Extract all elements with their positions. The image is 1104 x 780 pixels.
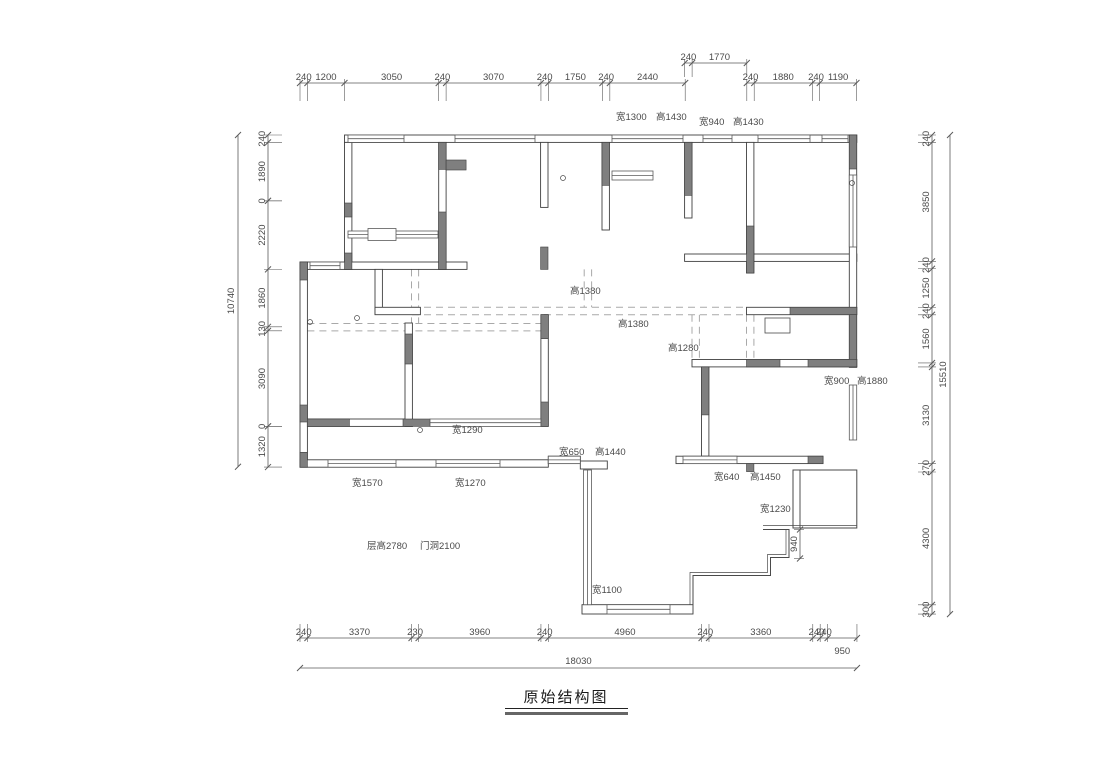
dim-label: 3130 [921,405,932,426]
window [607,605,670,614]
dim-label: 240 [743,72,759,83]
concrete-columns [345,253,352,269]
dim-chain-step-940: 940 [789,527,804,562]
annotation-text: 宽650 [559,446,584,458]
dim-label: 240 [434,72,450,83]
dim-chain-top-right: 24018802401190 [743,72,860,101]
pass-through-window [368,229,396,241]
dim-overall-overall-right: 15510 [938,132,953,617]
terrace-step-outline [693,530,789,605]
title-underline [505,712,628,715]
dim-label: 3070 [483,72,504,83]
dim-label: 950 [834,646,850,657]
window [455,135,535,142]
dim-label: 940 [789,536,800,552]
annotation-text: 高1280 [668,342,699,354]
concrete-columns [307,419,349,426]
window [822,135,848,142]
dim-overall-overall-left: 10740 [226,132,241,470]
concrete-columns [541,315,548,339]
dim-label: 240 [921,303,932,319]
dim-label: 1770 [709,52,730,63]
dim-label: 2220 [257,225,268,246]
concrete-columns [747,226,754,273]
dim-label: 1190 [828,72,848,83]
window [612,135,683,142]
dim-label: 3370 [349,627,370,638]
concrete-columns [300,262,307,280]
concrete-columns [808,456,823,463]
dim-label: 3050 [381,72,402,83]
dim-label: 230 [407,627,423,638]
dim-label: 3090 [257,368,268,389]
concrete-columns [345,203,352,217]
annotation-text: 高1880 [857,375,888,387]
annotation-text: 宽940 [699,116,724,128]
dim-label: 3960 [469,627,490,638]
symbol-circle [355,316,360,321]
concrete-columns [300,452,307,467]
dim-label: 18030 [565,656,591,667]
annotation-text: 宽640 [714,471,739,483]
dim-label: 3360 [750,627,771,638]
symbol-circle [418,428,423,433]
dim-label: 240 [537,627,553,638]
walls [793,470,800,528]
title-underline [505,708,628,709]
dim-label: 240 [537,72,553,83]
annotation-text: 层高2780 [367,540,407,552]
walls [375,307,420,314]
annotation-layer: 宽1300高1430宽940高1430高1380高1380高1280宽900高1… [352,111,888,596]
concrete-columns [403,419,430,426]
dim-label: 240 [697,627,713,638]
dim-label: 1750 [565,72,586,83]
window [584,470,592,605]
concrete-columns [405,334,412,364]
concrete-columns [790,307,857,314]
dim-chain-left: 2401890022201860130309001320 [257,131,282,470]
dim-label: 240 [808,72,824,83]
annotation-text: 门洞2100 [420,540,460,552]
dim-chain-top-main: 24012003050240307024017502402440 [296,72,688,101]
balcony-slider [430,419,541,426]
window [436,460,500,467]
window [758,135,810,142]
concrete-columns [439,212,446,269]
walls [685,254,754,261]
annotation-text: 宽1570 [352,477,383,489]
annotation-text: 高1380 [618,318,649,330]
annotation-text: 高1440 [595,446,626,458]
concrete-columns [747,464,754,472]
annotation-text: 高1450 [750,471,781,483]
floorplan-canvas: 2401200305024030702401750240244024017702… [0,0,1104,780]
window [849,385,856,440]
concrete-columns [849,135,856,169]
dim-label: 15510 [938,361,949,387]
concrete-columns [446,160,466,170]
dim-label: 240 [257,131,268,147]
terrace-step-inner [690,530,786,605]
dim-label: 3850 [921,191,932,212]
window [328,460,396,467]
dim-label: 1320 [257,436,268,457]
terrace-room [793,470,857,528]
concrete-columns [808,360,857,367]
annotation-text: 宽1100 [592,584,622,596]
walls [541,142,548,207]
annotation-text: 宽1300 [616,111,647,123]
dim-label: 0 [257,424,268,429]
dim-label: 240 [921,131,932,147]
annotation-text: 宽1230 [760,503,791,515]
walls [300,262,307,467]
annotation-text: 宽1290 [452,424,483,436]
concrete-columns [747,360,781,367]
concrete-columns [685,142,692,195]
dim-label: 1250 [921,277,932,298]
window [612,171,653,180]
annotation-text: 宽900 [824,375,849,387]
concrete-columns [602,142,609,185]
drawing-title: 原始结构图 [490,686,642,707]
dim-chain-top-upper: 2401770 [680,52,749,77]
dim-label: 4300 [921,528,932,549]
dim-label: 4960 [614,627,635,638]
dim-chain-right: 24038502401250240156031302704300300 [918,131,936,618]
window [348,135,404,142]
dim-label: 130 [257,321,268,337]
window [849,175,856,247]
annotation-text: 宽1270 [455,477,486,489]
annotation-text: 高1380 [570,285,601,297]
dim-label: 1560 [921,328,932,349]
window [703,135,732,142]
concrete-columns [541,402,548,426]
drawing-sheet: 2401200305024030702401750240244024017702… [0,0,1104,780]
concrete-columns [439,142,446,169]
dim-chain-bottom: 2403370230396024049602403360240240950 [296,624,860,657]
concrete-columns [300,405,307,422]
dim-label: 0 [257,198,268,203]
walls [754,254,857,261]
dim-label: 240 [296,627,312,638]
dim-label: 10740 [226,288,237,314]
walls [580,461,607,469]
annotation-text: 高1430 [656,111,687,123]
symbol-circle [561,176,566,181]
dim-label: 1890 [257,161,268,182]
dim-label: 1200 [315,72,336,83]
dim-label: 240 [296,72,312,83]
dim-label: 1860 [257,288,268,309]
dim-label: 240 [816,627,832,638]
annotation-text: 高1430 [733,116,764,128]
dim-label: 270 [921,460,932,476]
window [683,456,737,463]
dim-label: 1880 [773,72,794,83]
dim-label: 300 [921,602,932,618]
pass-through-window [348,229,438,241]
dim-label: 240 [680,52,696,63]
dim-label: 240 [598,72,614,83]
dim-label: 2440 [637,72,658,83]
concrete-columns [702,367,709,415]
closet-box [765,318,790,333]
dim-label: 240 [921,257,932,273]
dim-overall-overall-bottom: 18030 [297,656,860,671]
concrete-columns [541,247,548,269]
window [310,262,340,269]
